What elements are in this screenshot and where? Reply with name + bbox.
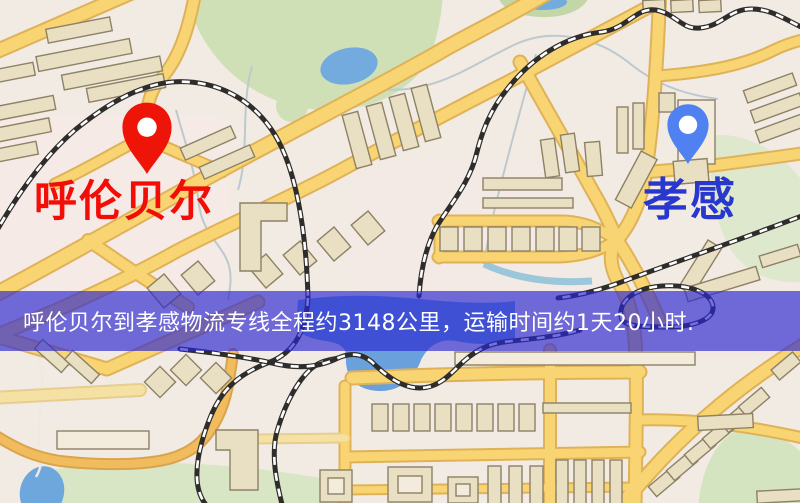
destination-label: 孝感	[643, 177, 737, 222]
map-canvas	[0, 0, 800, 503]
info-banner: 呼伦贝尔到孝感物流专线全程约3148公里，运输时间约1天20小时.	[0, 291, 800, 351]
map-screenshot: 呼伦贝尔 孝感 呼伦贝尔到孝感物流专线全程约3148公里，运输时间约1天20小时…	[0, 0, 800, 503]
origin-label: 呼伦贝尔	[34, 181, 214, 224]
banner-text: 呼伦贝尔到孝感物流专线全程约3148公里，运输时间约1天20小时.	[0, 305, 694, 337]
